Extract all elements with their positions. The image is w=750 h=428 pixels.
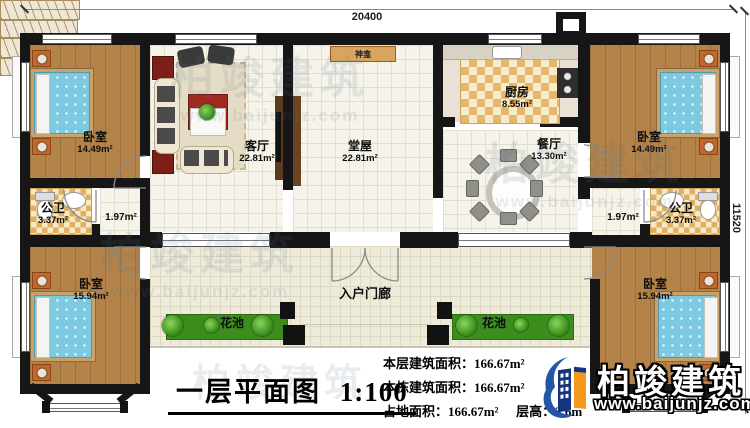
- pass-right-label: 1.97m²: [598, 212, 648, 223]
- porch-label: 入户门廊: [319, 287, 411, 302]
- bed-pillow: [36, 74, 50, 134]
- bed-pillow: [36, 297, 50, 358]
- plan-title: 一层平面图 1:100: [168, 370, 416, 415]
- room-area: 14.49m²: [614, 145, 684, 156]
- room-area: 22.81m²: [222, 154, 292, 165]
- pass-left-label: 1.97m²: [98, 212, 144, 223]
- stat-label: 本层建筑面积：: [383, 356, 474, 371]
- bed-pillow: [702, 74, 716, 134]
- bath-right-label: 公卫 3.37m²: [651, 202, 711, 227]
- stat-value: 166.67m²: [474, 356, 524, 371]
- brand-logo-icon: [538, 353, 596, 421]
- kitchen-label: 厨房 8.55m²: [482, 86, 552, 111]
- dimension-line-top: [24, 9, 734, 10]
- stat-value: 166.67m²: [474, 380, 524, 395]
- room-area: 13.30m²: [514, 152, 584, 163]
- room-name: 卧室: [637, 130, 661, 144]
- room-name: 卧室: [79, 277, 103, 291]
- room-name: 卧室: [83, 130, 107, 144]
- brand-logo-url: www.baijunjz.com: [594, 394, 750, 414]
- room-name: 公卫: [669, 201, 693, 215]
- stat-label: 占地面积：: [383, 404, 448, 419]
- living-label: 客厅 22.81m²: [222, 140, 292, 165]
- room-area: 15.94m²: [620, 292, 690, 303]
- dimension-top-value: 20400: [337, 11, 397, 23]
- room-area: 22.81m²: [325, 154, 395, 165]
- room-name: 卧室: [643, 277, 667, 291]
- room-name: 客厅: [245, 139, 269, 153]
- bedroom-tr-label: 卧室 14.49m²: [614, 131, 684, 156]
- room-name: 公卫: [41, 201, 65, 215]
- bath-left-label: 公卫 3.37m²: [23, 202, 83, 227]
- bedroom-br-label: 卧室 15.94m²: [620, 278, 690, 303]
- dining-label: 餐厅 13.30m²: [514, 138, 584, 163]
- plan-title-text: 一层平面图: [176, 377, 321, 407]
- bed-pillow: [704, 297, 718, 358]
- dimension-right-value: 11520: [730, 196, 742, 240]
- room-area: 3.37m²: [651, 216, 711, 227]
- hall-label: 堂屋 22.81m²: [325, 140, 395, 165]
- room-area: 14.49m²: [60, 145, 130, 156]
- room-name: 堂屋: [348, 139, 372, 153]
- stat-label: 本栋建筑面积：: [383, 380, 474, 395]
- room-area: 15.94m²: [56, 292, 126, 303]
- room-area: 3.37m²: [23, 216, 83, 227]
- room-name: 餐厅: [537, 137, 561, 151]
- room-area: 8.55m²: [482, 100, 552, 111]
- flower-right-label: 花池: [468, 317, 520, 331]
- flower-left-label: 花池: [206, 317, 258, 331]
- bedroom-bl-label: 卧室 15.94m²: [56, 278, 126, 303]
- stat-value: 166.67m²: [448, 404, 498, 419]
- room-name: 厨房: [505, 85, 529, 99]
- bedroom-tl-label: 卧室 14.49m²: [60, 131, 130, 156]
- dimension-line-right: [745, 12, 746, 414]
- floor-plan: 20400 11520: [0, 0, 750, 428]
